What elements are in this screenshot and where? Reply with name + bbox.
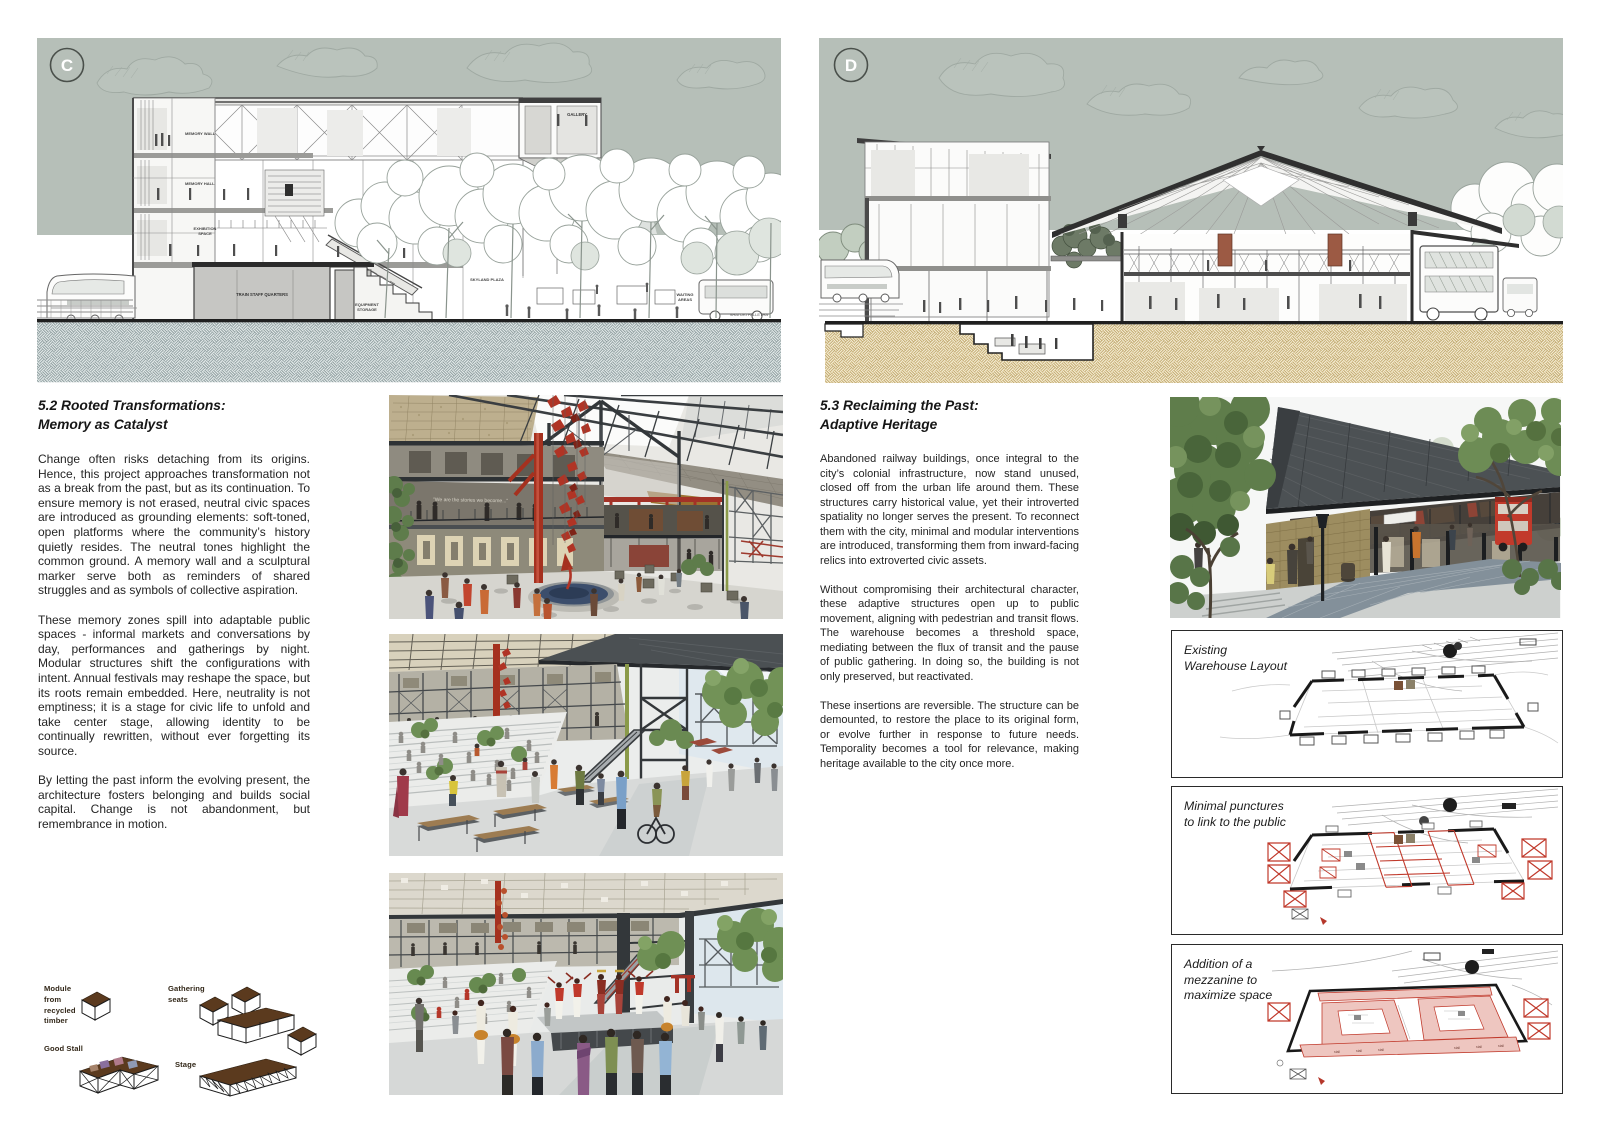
svg-text:AREAS: AREAS: [678, 297, 692, 302]
svg-text:stall: stall: [1454, 1046, 1460, 1050]
svg-text:MEMORY HALL: MEMORY HALL: [185, 181, 215, 186]
svg-text:GALLERY: GALLERY: [567, 112, 587, 117]
svg-text:D: D: [845, 56, 857, 75]
svg-text:stall: stall: [1476, 1045, 1482, 1049]
svg-text:stall: stall: [1356, 1049, 1362, 1053]
svg-text:SKYLAND PLAZA: SKYLAND PLAZA: [470, 277, 504, 282]
svg-text:SPACE: SPACE: [198, 231, 212, 236]
svg-text:SHATUKI PALLETHA: SHATUKI PALLETHA: [730, 312, 769, 317]
svg-text:stall: stall: [1334, 1050, 1340, 1054]
svg-text:MEMORY WALL: MEMORY WALL: [185, 131, 216, 136]
svg-text:TRAIN STAFF QUARTERS: TRAIN STAFF QUARTERS: [236, 292, 288, 297]
svg-text:STORAGE: STORAGE: [357, 307, 377, 312]
svg-text:stall: stall: [1378, 1048, 1384, 1052]
svg-text:C: C: [61, 56, 73, 75]
svg-text:stall: stall: [1498, 1044, 1504, 1048]
